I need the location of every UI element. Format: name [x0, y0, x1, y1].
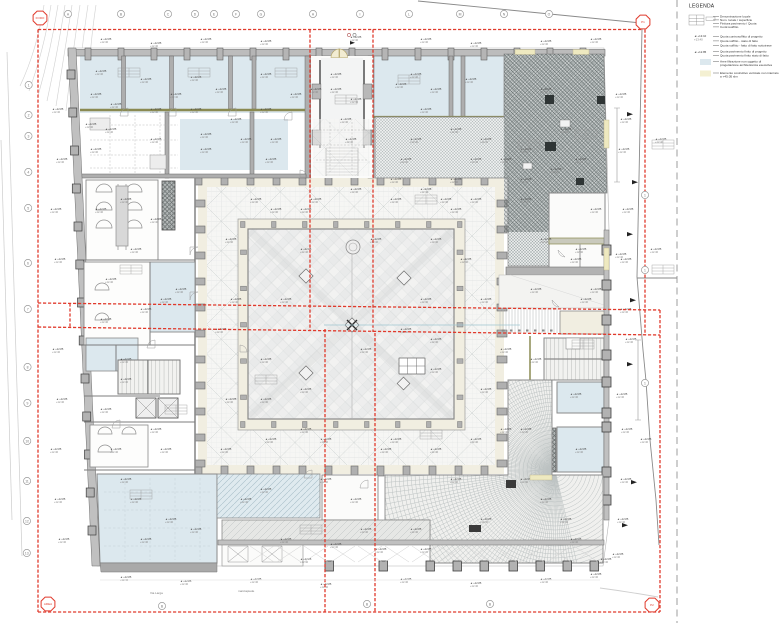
- svg-text:+12.40: +12.40: [120, 380, 129, 384]
- svg-text:+12.40: +12.40: [56, 160, 65, 164]
- svg-text:+12.40: +12.40: [270, 140, 279, 144]
- svg-text:+12.40: +12.40: [300, 390, 309, 394]
- svg-text:+12.40: +12.40: [165, 520, 174, 524]
- svg-text:+12.40: +12.40: [520, 430, 529, 434]
- svg-text:+12.40: +12.40: [54, 260, 63, 264]
- svg-text:+12.40: +12.40: [530, 360, 539, 364]
- svg-text:+12.40: +12.40: [260, 42, 269, 46]
- svg-text:8: 8: [27, 365, 29, 369]
- svg-text:Controsoffitto: Controsoffitto: [720, 25, 739, 29]
- svg-text:+12.40: +12.40: [622, 210, 631, 214]
- svg-text:+12.40: +12.40: [410, 75, 419, 79]
- svg-text:+12.40: +12.40: [590, 40, 599, 44]
- svg-text:+12.40: +12.40: [310, 200, 319, 204]
- svg-text:+12.40: +12.40: [460, 260, 469, 264]
- svg-text:+12.40: +12.40: [52, 350, 61, 354]
- svg-text:+12.40: +12.40: [240, 140, 249, 144]
- svg-text:+12.40: +12.40: [520, 200, 529, 204]
- svg-text:+12.40: +12.40: [420, 40, 429, 44]
- svg-text:5: 5: [27, 206, 29, 210]
- svg-text:+12.40: +12.40: [200, 40, 209, 44]
- svg-text:+12.40: +12.40: [50, 210, 59, 214]
- svg-text:+12.40: +12.40: [150, 140, 159, 144]
- svg-text:+12.40: +12.40: [500, 430, 509, 434]
- svg-text:+12.40: +12.40: [450, 480, 459, 484]
- svg-text:+12.40: +12.40: [50, 450, 59, 454]
- svg-text:+12.40: +12.40: [90, 95, 99, 99]
- svg-text:+12.40: +12.40: [620, 120, 629, 124]
- svg-text:+12.40: +12.40: [470, 160, 479, 164]
- svg-text:1: 1: [644, 193, 646, 197]
- svg-text:1: 1: [644, 381, 646, 385]
- svg-text:LEGENDA: LEGENDA: [689, 4, 715, 10]
- svg-text:+12.40: +12.40: [190, 530, 199, 534]
- svg-text:+12.40: +12.40: [150, 220, 159, 224]
- svg-text:+12.40: +12.40: [560, 130, 569, 134]
- svg-text:+12.40: +12.40: [280, 540, 289, 544]
- svg-text:+12.40: +12.40: [360, 530, 369, 534]
- svg-text:+12.40: +12.40: [575, 160, 584, 164]
- svg-text:marciapiede: marciapiede: [238, 589, 255, 593]
- svg-text:+12.40: +12.40: [470, 44, 479, 48]
- svg-text:M: M: [459, 12, 462, 16]
- svg-text:4: 4: [27, 170, 29, 174]
- svg-text:+12.40: +12.40: [617, 520, 626, 524]
- svg-text:+12.40: +12.40: [620, 310, 629, 314]
- svg-text:+12.40: +12.40: [350, 100, 359, 104]
- svg-text:+12.40: +12.40: [90, 150, 99, 154]
- svg-text:I: I: [360, 12, 361, 16]
- svg-text:+12.40: +12.40: [540, 580, 549, 584]
- svg-text:+12.40: +12.40: [300, 250, 309, 254]
- svg-text:+12.40: +12.40: [618, 150, 627, 154]
- svg-text:+12.40: +12.40: [190, 110, 199, 114]
- svg-text:+12.40: +12.40: [430, 450, 439, 454]
- svg-text:G: G: [260, 12, 263, 16]
- svg-text:+12.40: +12.40: [120, 200, 129, 204]
- svg-text:+12.40: +12.40: [130, 500, 139, 504]
- svg-text:AREA: AREA: [44, 602, 52, 606]
- svg-text:+12.40: +12.40: [410, 530, 419, 534]
- svg-text:+12.40: +12.40: [370, 240, 379, 244]
- svg-text:+12.40: +12.40: [265, 440, 274, 444]
- svg-text:+12.40: +12.40: [420, 190, 429, 194]
- svg-text:+12.40: +12.40: [330, 545, 339, 549]
- svg-text:10: 10: [25, 439, 29, 443]
- svg-text:+12.40: +12.40: [480, 140, 489, 144]
- svg-text:+12.40: +12.40: [655, 140, 664, 144]
- svg-text:3: 3: [28, 134, 30, 138]
- svg-text:+12.40: +12.40: [540, 42, 549, 46]
- svg-text:2: 2: [28, 113, 30, 117]
- svg-text:+12.40: +12.40: [215, 90, 224, 94]
- svg-text:+12.40: +12.40: [590, 290, 599, 294]
- svg-text:Via Larga: Via Larga: [150, 591, 163, 595]
- svg-text:+12.40: +12.40: [105, 280, 114, 284]
- svg-text:+12.40: +12.40: [350, 190, 359, 194]
- svg-text:+12.40: +12.40: [180, 582, 189, 586]
- svg-text:+12.40: +12.40: [390, 200, 399, 204]
- svg-text:+12.40: +12.40: [225, 240, 234, 244]
- svg-text:Quota controsoffitto di proget: Quota controsoffitto di progetto: [720, 35, 763, 39]
- svg-text:+12.40: +12.40: [345, 140, 354, 144]
- svg-text:+12.40: +12.40: [600, 560, 609, 564]
- svg-text:9: 9: [26, 401, 28, 405]
- svg-text:+12.40: +12.40: [260, 75, 269, 79]
- svg-text:+12.40: +12.40: [160, 450, 169, 454]
- svg-text:+12.40: +12.40: [130, 250, 139, 254]
- svg-text:+12.40: +12.40: [465, 80, 474, 84]
- svg-text:+12.40: +12.40: [200, 150, 209, 154]
- svg-text:+12.40: +12.40: [100, 410, 109, 414]
- svg-text:+12.40: +12.40: [612, 555, 621, 559]
- svg-text:+12.40: +12.40: [250, 580, 259, 584]
- svg-text:+12.40: +12.40: [56, 400, 65, 404]
- svg-text:7: 7: [27, 307, 29, 311]
- svg-text:+12.40: +12.40: [420, 300, 429, 304]
- svg-text:11: 11: [25, 479, 29, 483]
- svg-text:+12.40: +12.40: [120, 360, 129, 364]
- svg-text:+12.40: +12.40: [150, 430, 159, 434]
- svg-text:+12.40: +12.40: [215, 330, 224, 334]
- svg-text:+12.40: +12.40: [590, 210, 599, 214]
- svg-text:+12.40: +12.40: [150, 110, 159, 114]
- svg-text:+12.40: +12.40: [625, 340, 634, 344]
- svg-text:+12.40: +12.40: [320, 585, 329, 589]
- svg-text:+12.40: +12.40: [470, 584, 479, 588]
- svg-text:+12.40: +12.40: [200, 135, 209, 139]
- svg-text:+12.40: +12.40: [410, 140, 419, 144]
- svg-text:+12.40: +12.40: [430, 90, 439, 94]
- svg-text:+12.40: +12.40: [580, 300, 589, 304]
- svg-text:F: F: [235, 12, 237, 16]
- svg-text:+12.40: +12.40: [440, 200, 449, 204]
- svg-text:+12.40: +12.40: [500, 160, 509, 164]
- svg-text:+12.40: +12.40: [450, 210, 459, 214]
- svg-text:+12.40: +12.40: [240, 500, 249, 504]
- svg-text:+12.40: +12.40: [430, 370, 439, 374]
- svg-text:progettazione architettonica e: progettazione architettonica esecutiva: [720, 63, 772, 67]
- svg-text:a +45.05 slm: a +45.05 slm: [720, 75, 738, 79]
- svg-text:+12.40: +12.40: [650, 250, 659, 254]
- svg-text:+12.40: +12.40: [480, 300, 489, 304]
- svg-text:+12.40: +12.40: [620, 480, 629, 484]
- svg-text:+12.40: +12.40: [100, 40, 109, 44]
- svg-text:+12.40: +12.40: [540, 240, 549, 244]
- svg-text:+12.40: +12.40: [260, 490, 269, 494]
- svg-text:+12.40: +12.40: [420, 110, 429, 114]
- svg-text:+12.40: +12.40: [105, 130, 114, 134]
- svg-text:+12.40: +12.40: [575, 250, 584, 254]
- svg-text:1: 1: [28, 83, 30, 87]
- svg-text:+12.40: +12.40: [140, 80, 149, 84]
- svg-text:+12.40: +12.40: [320, 480, 329, 484]
- svg-text:FORO: FORO: [36, 16, 45, 20]
- svg-text:+12.40: +12.40: [260, 110, 269, 114]
- svg-text:+13.40: +13.40: [694, 38, 703, 42]
- svg-text:+12.40: +12.40: [530, 290, 539, 294]
- svg-text:+12.40: +12.40: [270, 210, 279, 214]
- svg-text:+12.40: +12.40: [620, 260, 629, 264]
- svg-text:+12.40: +12.40: [220, 450, 229, 454]
- svg-text:13: 13: [25, 551, 29, 555]
- svg-text:+12.40: +12.40: [52, 110, 61, 114]
- svg-text:12: 12: [25, 519, 29, 523]
- svg-text:+12.40: +12.40: [330, 90, 339, 94]
- svg-text:1: 1: [644, 268, 646, 272]
- svg-text:+12.40: +12.40: [430, 240, 439, 244]
- svg-text:+12.40: +12.40: [640, 440, 649, 444]
- svg-text:+12.40: +12.40: [570, 540, 579, 544]
- svg-text:+12.40: +12.40: [100, 320, 109, 324]
- svg-text:◄ +12.85: ◄ +12.85: [694, 50, 707, 54]
- svg-text:+12.40: +12.40: [450, 180, 459, 184]
- svg-text:+12.40: +12.40: [190, 78, 199, 82]
- svg-text:+12.40: +12.40: [120, 480, 129, 484]
- svg-text:+12.40: +12.40: [110, 105, 119, 109]
- svg-text:+12.40: +12.40: [95, 72, 104, 76]
- svg-text:+12.40: +12.40: [260, 400, 269, 404]
- svg-text:+12.40: +12.40: [470, 440, 479, 444]
- svg-text:+12.40: +12.40: [621, 430, 630, 434]
- svg-text:+12.40: +12.40: [390, 180, 399, 184]
- svg-text:+12.40: +12.40: [58, 540, 67, 544]
- svg-text:+12.40: +12.40: [290, 95, 299, 99]
- svg-text:+12.40: +12.40: [570, 260, 579, 264]
- svg-text:+12.40: +12.40: [450, 130, 459, 134]
- svg-text:+12.40: +12.40: [390, 440, 399, 444]
- svg-text:+12.40: +12.40: [310, 90, 319, 94]
- svg-text:+12.40: +12.40: [265, 160, 274, 164]
- svg-text:+12.40: +12.40: [360, 350, 369, 354]
- svg-text:+12.40: +12.40: [520, 180, 529, 184]
- svg-text:+12.40: +12.40: [520, 480, 529, 484]
- svg-text:+12.40: +12.40: [230, 300, 239, 304]
- svg-text:+12.40: +12.40: [330, 75, 339, 79]
- svg-text:O: O: [548, 12, 551, 16]
- svg-text:Quota soffitto - stato di fatt: Quota soffitto - stato di fatto: [720, 39, 758, 43]
- svg-text:+12.40: +12.40: [280, 300, 289, 304]
- svg-text:+12.40: +12.40: [480, 520, 489, 524]
- svg-text:+12.40: +12.40: [395, 85, 404, 89]
- svg-text:+12.40: +12.40: [150, 44, 159, 48]
- svg-text:+12.40: +12.40: [350, 500, 359, 504]
- svg-text:+12.40: +12.40: [175, 290, 184, 294]
- svg-text:+12.40: +12.40: [575, 450, 584, 454]
- svg-text:+12.40: +12.40: [550, 170, 559, 174]
- svg-text:+12.40: +12.40: [616, 395, 625, 399]
- svg-text:+12.40: +12.40: [375, 550, 384, 554]
- svg-text:+12.40: +12.40: [520, 150, 529, 154]
- svg-text:+12.40: +12.40: [230, 120, 239, 124]
- svg-text:+12.40: +12.40: [300, 430, 309, 434]
- svg-text:+12.40: +12.40: [615, 255, 624, 259]
- svg-text:P2: P2: [650, 603, 654, 607]
- svg-text:+12.40: +12.40: [85, 125, 94, 129]
- svg-text:+12.40: +12.40: [170, 95, 179, 99]
- svg-text:+12.40: +12.40: [400, 580, 409, 584]
- svg-text:P1: P1: [641, 20, 645, 24]
- svg-text:+12.40: +12.40: [340, 120, 349, 124]
- svg-text:Quota soffitto - fatto di fatt: Quota soffitto - fatto di fatto sottotra…: [720, 44, 772, 48]
- svg-text:L: L: [408, 12, 410, 16]
- svg-text:+12.40: +12.40: [110, 450, 119, 454]
- svg-text:+12.40: +12.40: [540, 90, 549, 94]
- svg-text:+12.40: +12.40: [540, 500, 549, 504]
- svg-text:Quota pavimento finito stato d: Quota pavimento finito stato di fatto: [720, 54, 769, 58]
- svg-text:+12.40: +12.40: [560, 520, 569, 524]
- svg-text:+12.40: +12.40: [615, 95, 624, 99]
- svg-text:+12.40: +12.40: [225, 400, 234, 404]
- svg-text:+12.40: +12.40: [260, 360, 269, 364]
- svg-text:+12.40: +12.40: [140, 540, 149, 544]
- svg-text:+12.40: +12.40: [470, 200, 479, 204]
- svg-text:+12.40: +12.40: [160, 300, 169, 304]
- svg-text:+12.40: +12.40: [300, 560, 309, 564]
- svg-text:+12.40: +12.40: [380, 450, 389, 454]
- svg-text:+12.40: +12.40: [590, 575, 599, 579]
- svg-text:+12.40: +12.40: [140, 310, 149, 314]
- svg-text:+12.40: +12.40: [320, 440, 329, 444]
- svg-text:+12.40: +12.40: [400, 160, 409, 164]
- svg-text:+12.40: +12.40: [430, 340, 439, 344]
- svg-text:6: 6: [27, 261, 29, 265]
- svg-text:+12.40: +12.40: [500, 350, 509, 354]
- svg-text:+12.40: +12.40: [250, 200, 259, 204]
- svg-text:+12.40: +12.40: [570, 395, 579, 399]
- svg-text:+12.40: +12.40: [300, 210, 309, 214]
- svg-text:+12.40: +12.40: [480, 390, 489, 394]
- svg-text:+12.40: +12.40: [54, 500, 63, 504]
- svg-text:+12.40: +12.40: [95, 210, 104, 214]
